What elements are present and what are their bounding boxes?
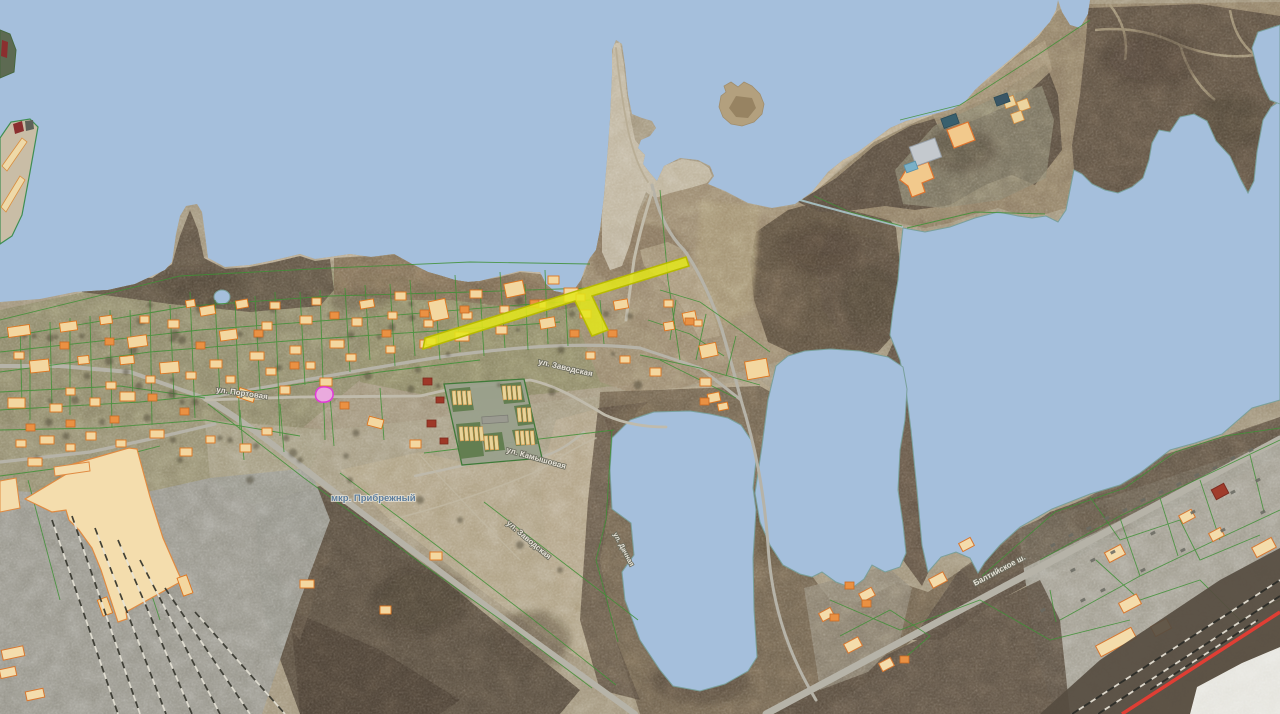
svg-text:мкр. Прибрежный: мкр. Прибрежный [331,493,416,504]
